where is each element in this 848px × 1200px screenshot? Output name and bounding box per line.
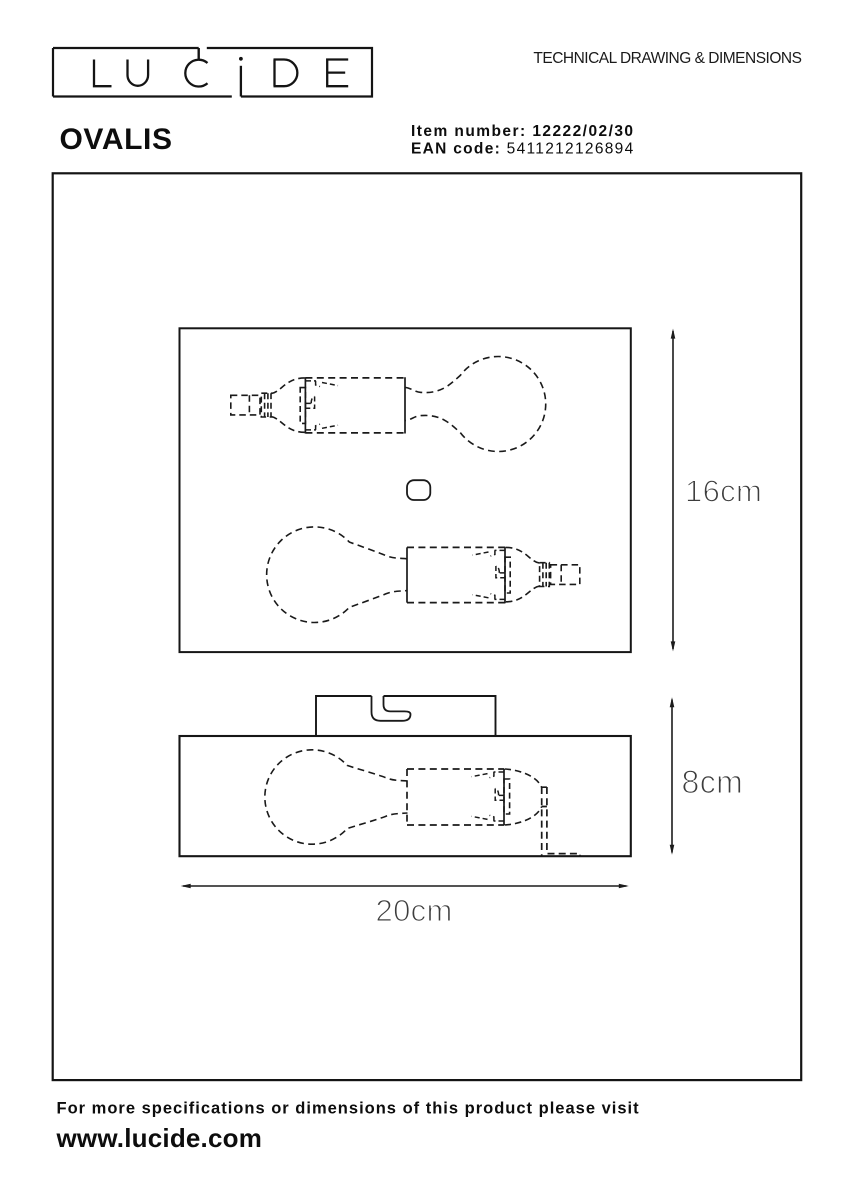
svg-text:TECHNICAL DRAWING & DIMENSIONS: TECHNICAL DRAWING & DIMENSIONS bbox=[533, 50, 801, 67]
svg-text:www.lucide.com: www.lucide.com bbox=[56, 1123, 263, 1153]
svg-text:EAN code: 5411212126894: EAN code: 5411212126894 bbox=[411, 141, 635, 158]
svg-text:20cm: 20cm bbox=[376, 893, 453, 928]
svg-text:For more specifications or dim: For more specifications or dimensions of… bbox=[57, 1100, 640, 1118]
svg-text:OVALIS: OVALIS bbox=[60, 123, 173, 156]
svg-text:8cm: 8cm bbox=[682, 764, 744, 800]
svg-text:Item number: 12222/02/30: Item number: 12222/02/30 bbox=[411, 123, 634, 140]
svg-text:16cm: 16cm bbox=[685, 474, 762, 509]
